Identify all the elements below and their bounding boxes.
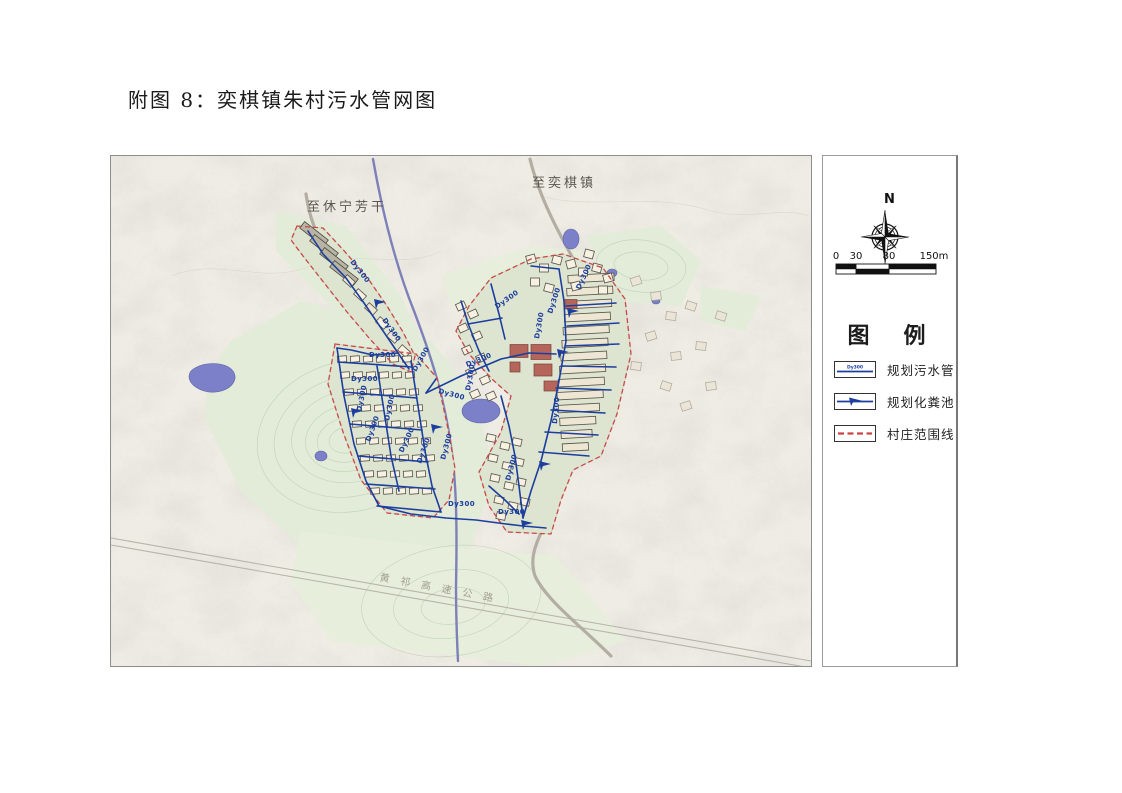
septic-tank-icon [834,393,876,410]
legend-panel: N 0 30 80 150m [822,155,958,667]
road-label-to-yiqi: 至奕棋镇 [532,172,596,191]
village-boundary-icon [834,425,876,442]
scale-bar-segments [836,264,936,274]
legend-label: 规划污水管 [887,360,955,379]
document-page: 附图 8：奕棋镇朱村污水管网图 [0,0,1122,793]
scale-bar: 0 30 80 150m [832,248,950,282]
sewage-pipe-icon: Dy300 [834,361,876,378]
pipe-label: Dy300 [498,508,525,516]
legend-item-septic-tank: 规划化粪池 [834,392,955,411]
road-label-to-xiuning: 至休宁芳干 [307,196,387,215]
legend-item-sewage-pipe: Dy300 规划污水管 [834,360,955,379]
legend-item-village-boundary: 村庄范围线 [834,424,955,443]
pipe-label: Dy300 [448,500,475,508]
scale-tick-80: 80 [883,251,896,262]
svg-text:Dy300: Dy300 [847,365,863,371]
figure-title: 附图 8：奕棋镇朱村污水管网图 [128,84,437,113]
compass-north-label: N [823,192,956,207]
map-panel: Dy300Dy300Dy300Dy300Dy300Dy300Dy300Dy300… [110,155,812,667]
scale-tick-30: 30 [850,251,863,262]
legend-title: 图 例 [823,318,956,350]
pipe-label: Dy300 [369,351,396,359]
legend-label: 规划化粪池 [887,392,955,411]
scale-tick-0: 0 [833,251,839,262]
pipe-label: Dy300 [351,375,378,383]
scale-tick-150: 150m [920,251,949,262]
legend-label: 村庄范围线 [887,424,955,443]
